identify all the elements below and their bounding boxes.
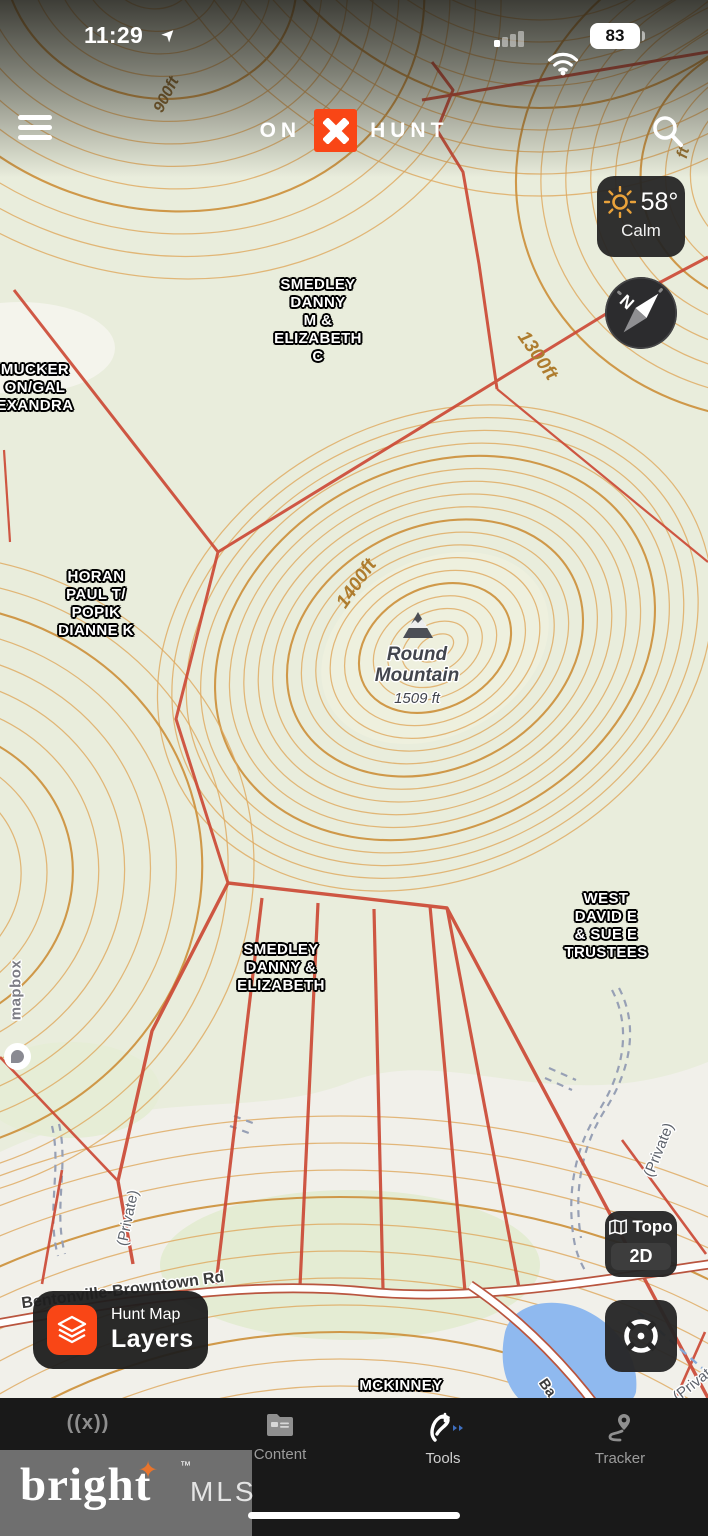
layers-icon (47, 1305, 97, 1355)
offline-maps-icon: ((x)) (28, 1412, 148, 1435)
parcel-label-smedley-danny-m: SMEDLEYDANNY M &ELIZABETH C (274, 276, 362, 366)
search-icon (648, 112, 688, 152)
search-button[interactable] (648, 112, 692, 152)
compass-button[interactable]: N (605, 277, 677, 349)
trademark-symbol: ™ (180, 1460, 191, 1472)
crosshair-icon (621, 1316, 661, 1356)
location-arrow-icon: ➤ (157, 23, 181, 47)
wifi-icon (546, 49, 580, 76)
weather-widget[interactable]: 58° Calm (597, 176, 685, 257)
home-indicator[interactable] (248, 1512, 460, 1519)
mls-text: MLS (190, 1476, 257, 1508)
temperature-value: 58° (641, 188, 679, 217)
hunt-map-layers-button[interactable]: Hunt Map Layers (33, 1291, 208, 1369)
onx-hunt-logo: ON HUNT (0, 109, 708, 152)
onx-x-icon (314, 109, 357, 152)
content-folder-icon (265, 1412, 295, 1438)
recenter-location-button[interactable] (605, 1300, 677, 1372)
status-bar: 11:29 ➤ 83 (0, 22, 708, 56)
cell-signal-icon (494, 30, 524, 47)
bright-star-icon: ✦ (138, 1456, 158, 1485)
hunt-map-label: Hunt Map (111, 1306, 193, 1324)
nav-item-offline[interactable]: ((x)) (28, 1412, 148, 1443)
nav-item-tracker[interactable]: Tracker (560, 1412, 680, 1467)
parcel-label-west-trustees: WESTDAVID E & SUE ETRUSTEES (564, 890, 647, 962)
clock: 11:29 (84, 22, 143, 49)
tracker-pin-icon (606, 1412, 634, 1442)
topo-label: Topo (632, 1217, 672, 1237)
parcel-label-smedley-danny: SMEDLEYDANNY & ELIZABETH (237, 941, 325, 995)
mapbox-attribution[interactable]: mapbox (8, 960, 25, 1021)
logo-on-text: ON (260, 119, 302, 143)
sun-icon (604, 186, 636, 218)
layers-label: Layers (111, 1325, 193, 1354)
nav-item-tools[interactable]: Tools (383, 1412, 503, 1467)
mode-2d-label: 2D (611, 1243, 671, 1270)
logo-hunt-text: HUNT (370, 119, 448, 143)
parcel-label-mucker: MUCKERON/GAL EXANDRA (0, 361, 73, 415)
battery-indicator: 83 (590, 23, 640, 49)
parcel-label-mckinney: MCKINNEY (359, 1377, 442, 1395)
bright-mls-watermark: bright ✦ ™ MLS (0, 1450, 252, 1536)
tools-pencil-icon (421, 1412, 465, 1442)
wind-status: Calm (597, 221, 685, 241)
mountain-label: Round Mountain 1509 ft (375, 644, 459, 709)
map-icon (609, 1219, 627, 1235)
mapbox-logo-icon[interactable] (4, 1043, 31, 1070)
parcel-label-horan-popik: HORANPAUL T/ POPIKDIANNE K (58, 568, 134, 640)
onx-hunt-app: { "status_bar": { "time": "11:29", "batt… (0, 0, 708, 1536)
map-layer-toggle-button[interactable]: Topo 2D (605, 1211, 677, 1277)
bright-wordmark: bright (20, 1458, 151, 1512)
